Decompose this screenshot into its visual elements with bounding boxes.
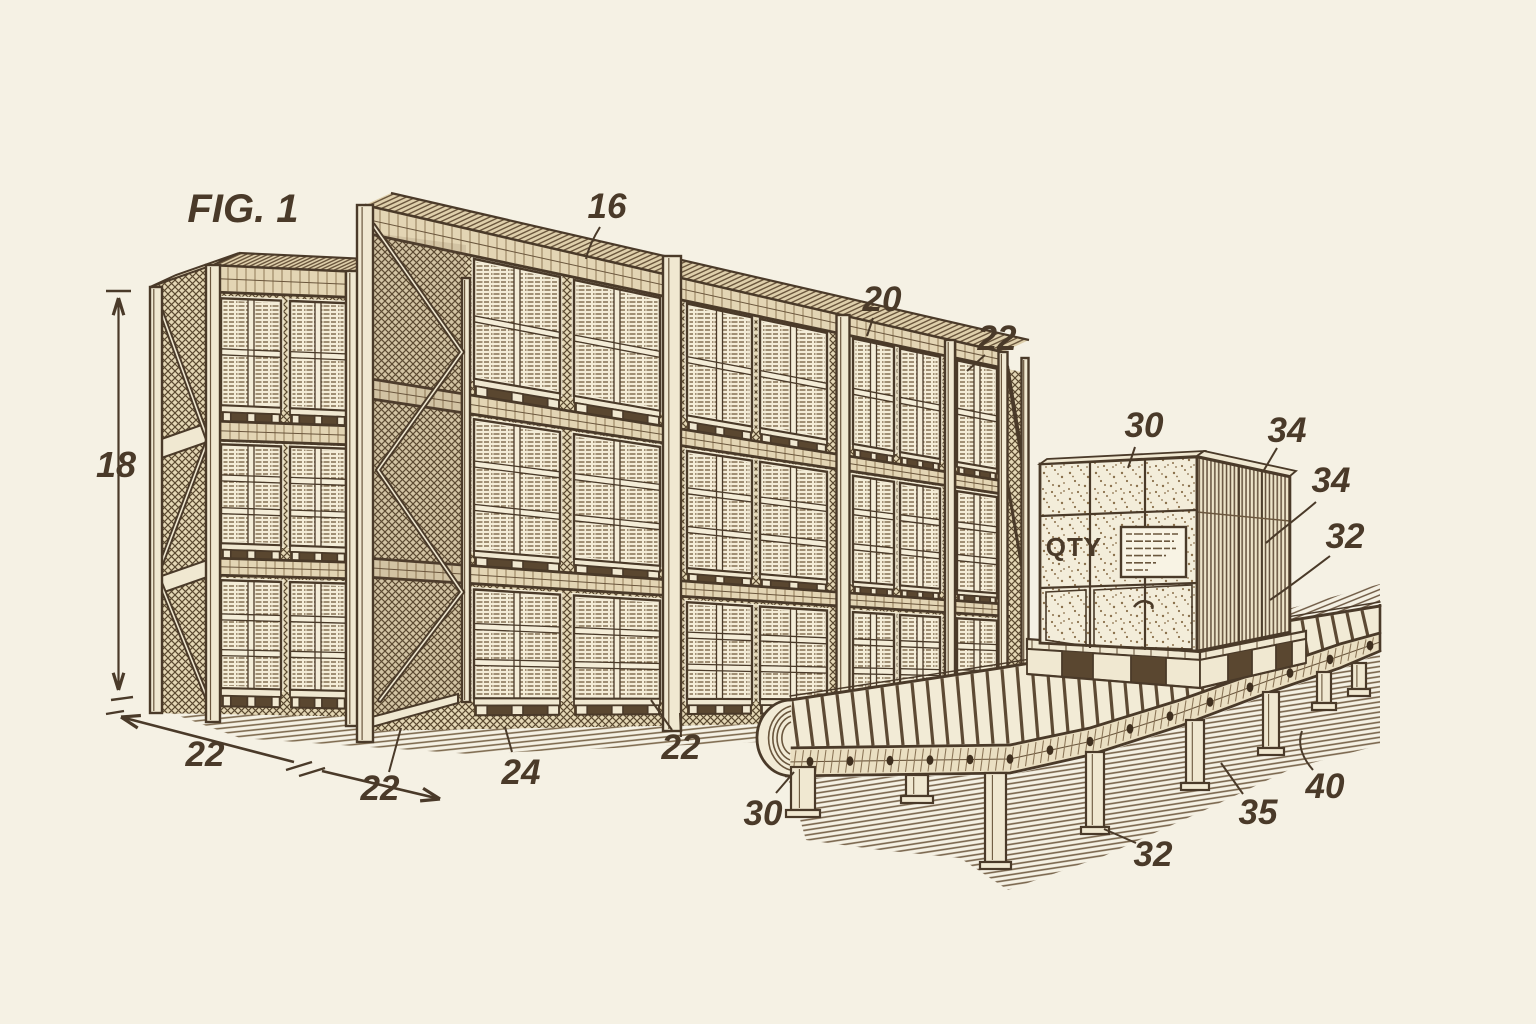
svg-text:34: 34 bbox=[1312, 461, 1351, 500]
svg-text:24: 24 bbox=[501, 753, 541, 792]
svg-text:22: 22 bbox=[360, 769, 400, 808]
svg-text:35: 35 bbox=[1239, 793, 1278, 832]
svg-text:32: 32 bbox=[1326, 517, 1365, 556]
svg-text:22: 22 bbox=[185, 735, 225, 774]
svg-text:20: 20 bbox=[862, 280, 902, 319]
svg-text:30: 30 bbox=[1125, 406, 1164, 445]
svg-text:FIG. 1: FIG. 1 bbox=[187, 187, 298, 231]
svg-text:30: 30 bbox=[744, 794, 783, 833]
svg-text:32: 32 bbox=[1134, 835, 1173, 874]
svg-text:40: 40 bbox=[1305, 767, 1345, 806]
svg-text:16: 16 bbox=[588, 187, 627, 226]
svg-text:18: 18 bbox=[96, 444, 136, 485]
svg-text:34: 34 bbox=[1268, 411, 1307, 450]
svg-text:QTY: QTY bbox=[1046, 532, 1102, 562]
svg-text:22: 22 bbox=[977, 319, 1017, 358]
